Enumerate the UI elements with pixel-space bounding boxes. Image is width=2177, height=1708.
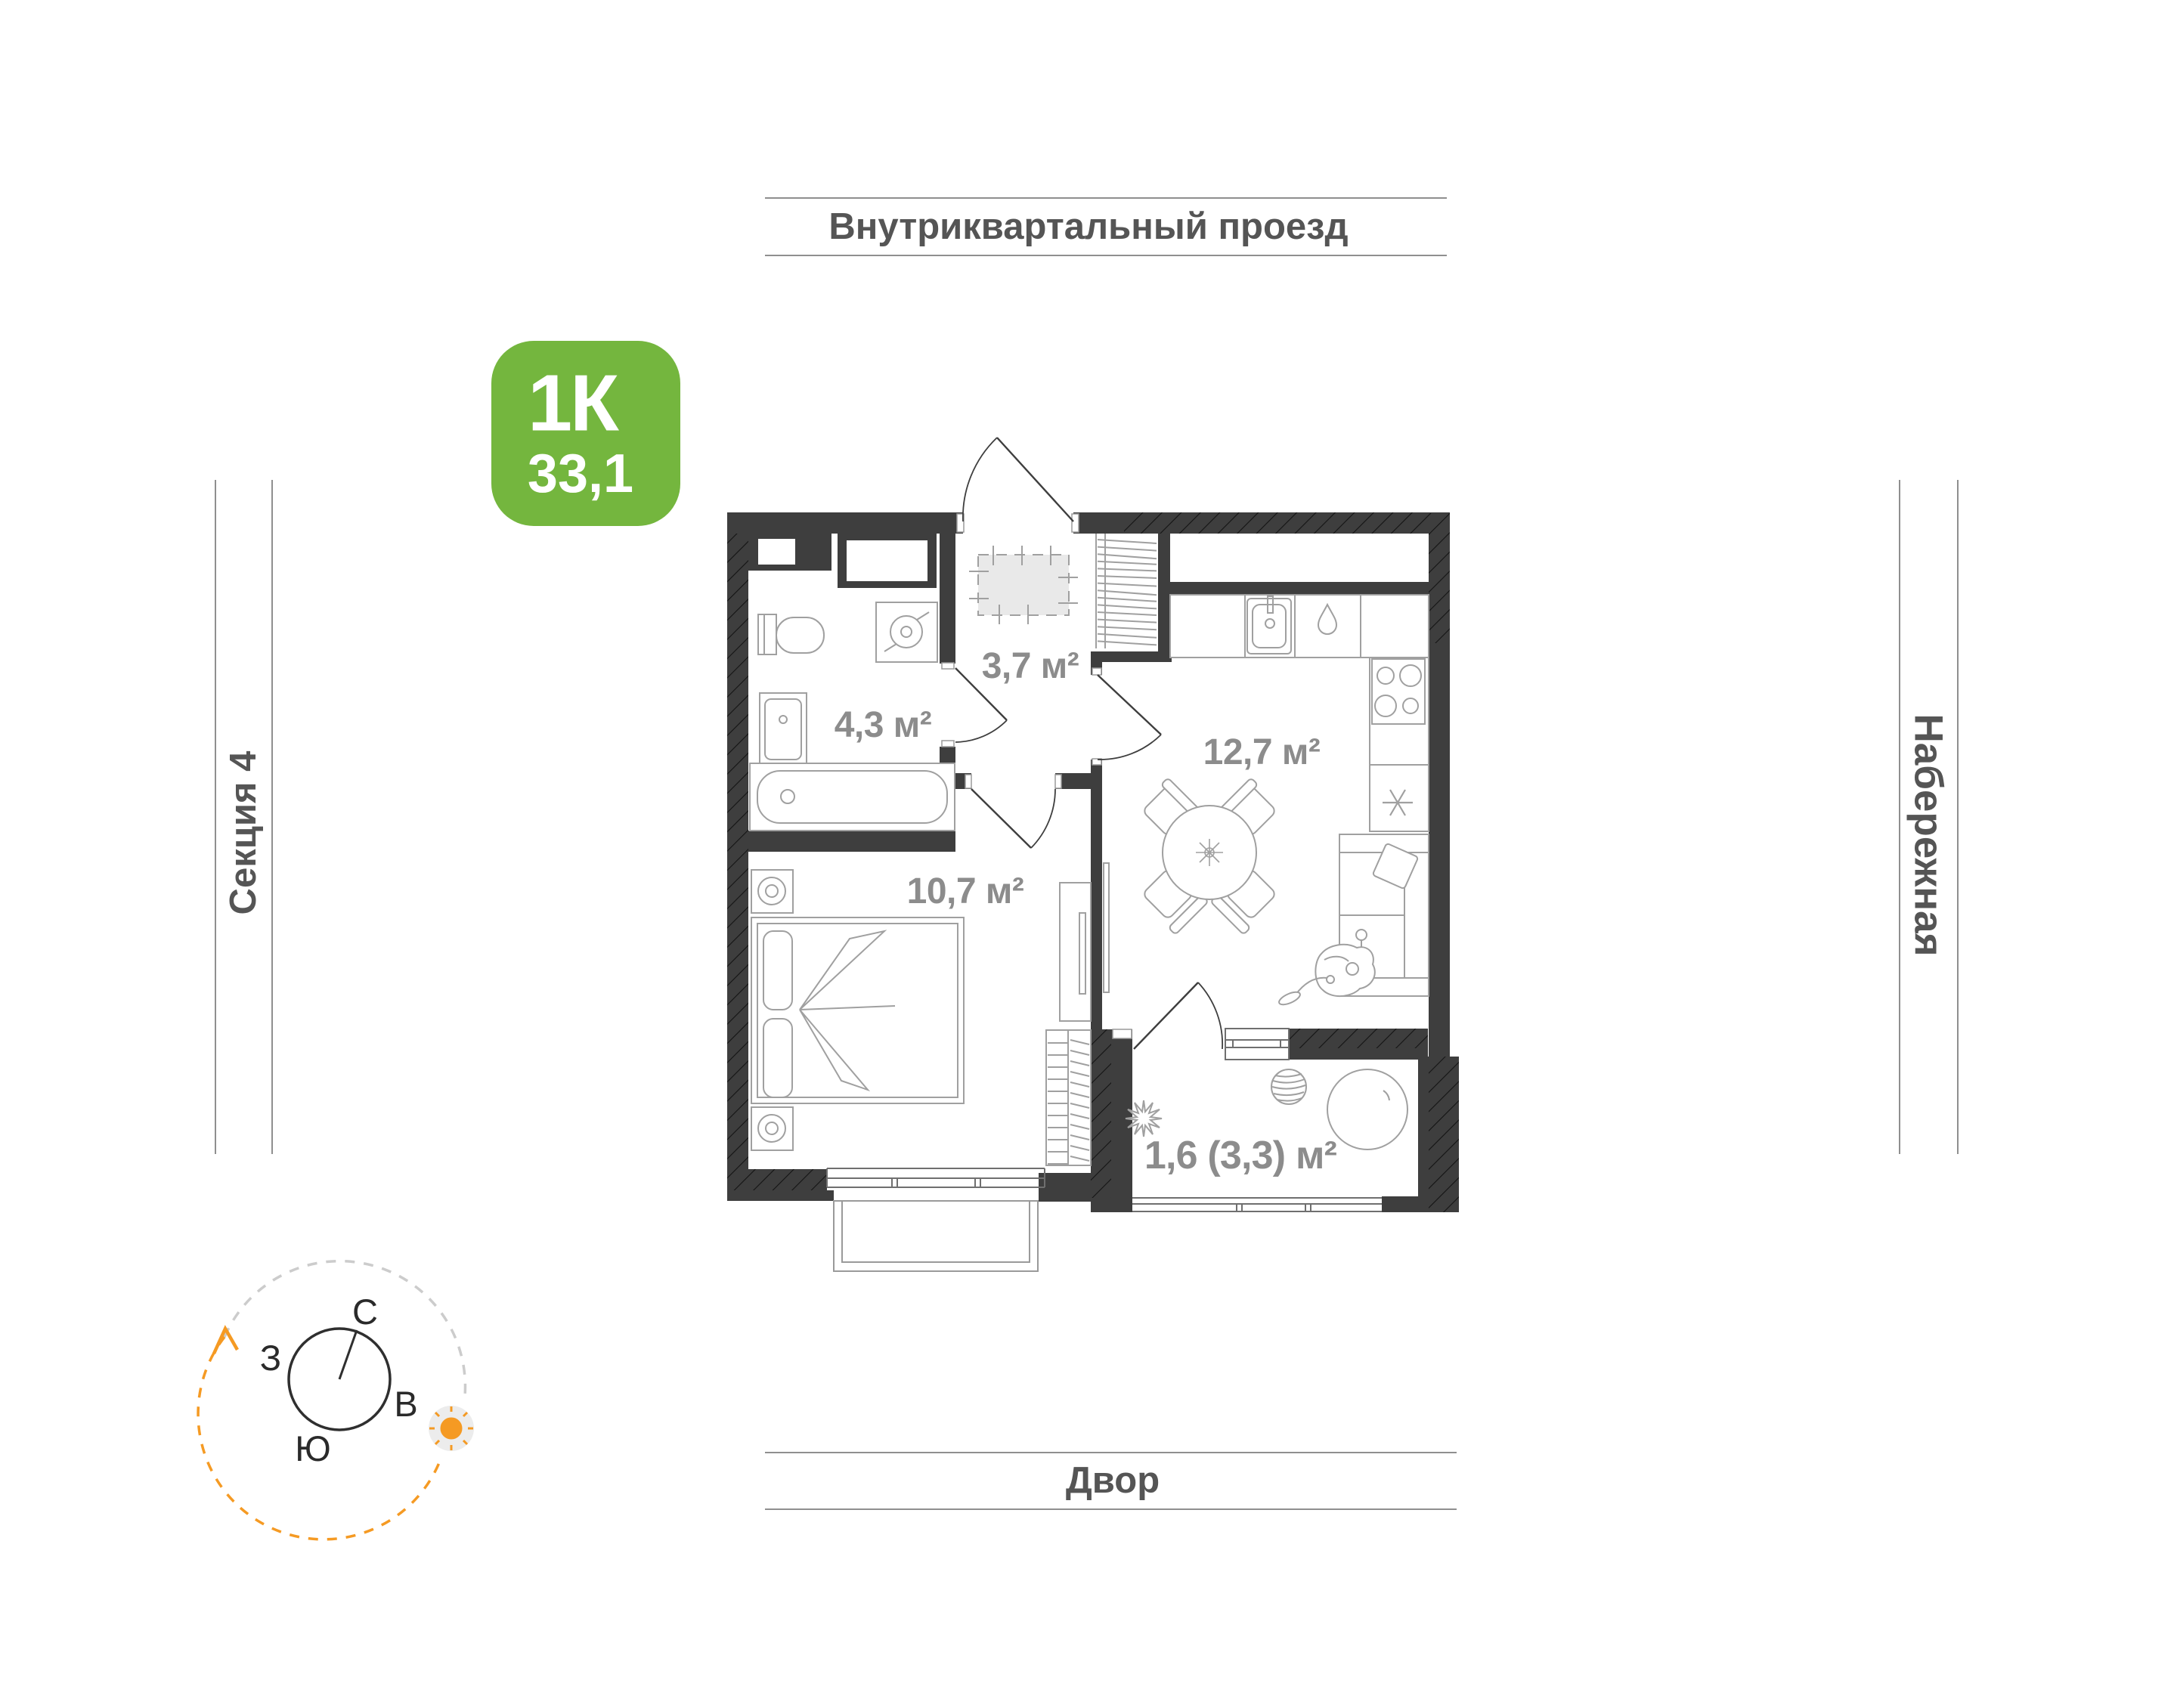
svg-text:4,3 м²: 4,3 м²	[835, 705, 932, 745]
svg-text:10,7 м²: 10,7 м²	[907, 871, 1024, 911]
svg-text:1,6 (3,3) м²: 1,6 (3,3) м²	[1144, 1134, 1337, 1177]
svg-text:3,7 м²: 3,7 м²	[982, 646, 1079, 686]
svg-text:12,7 м²: 12,7 м²	[1203, 732, 1321, 772]
svg-text:З: З	[260, 1338, 281, 1378]
svg-text:В: В	[394, 1384, 417, 1424]
svg-text:Ю: Ю	[295, 1428, 330, 1468]
svg-text:С: С	[352, 1292, 378, 1332]
